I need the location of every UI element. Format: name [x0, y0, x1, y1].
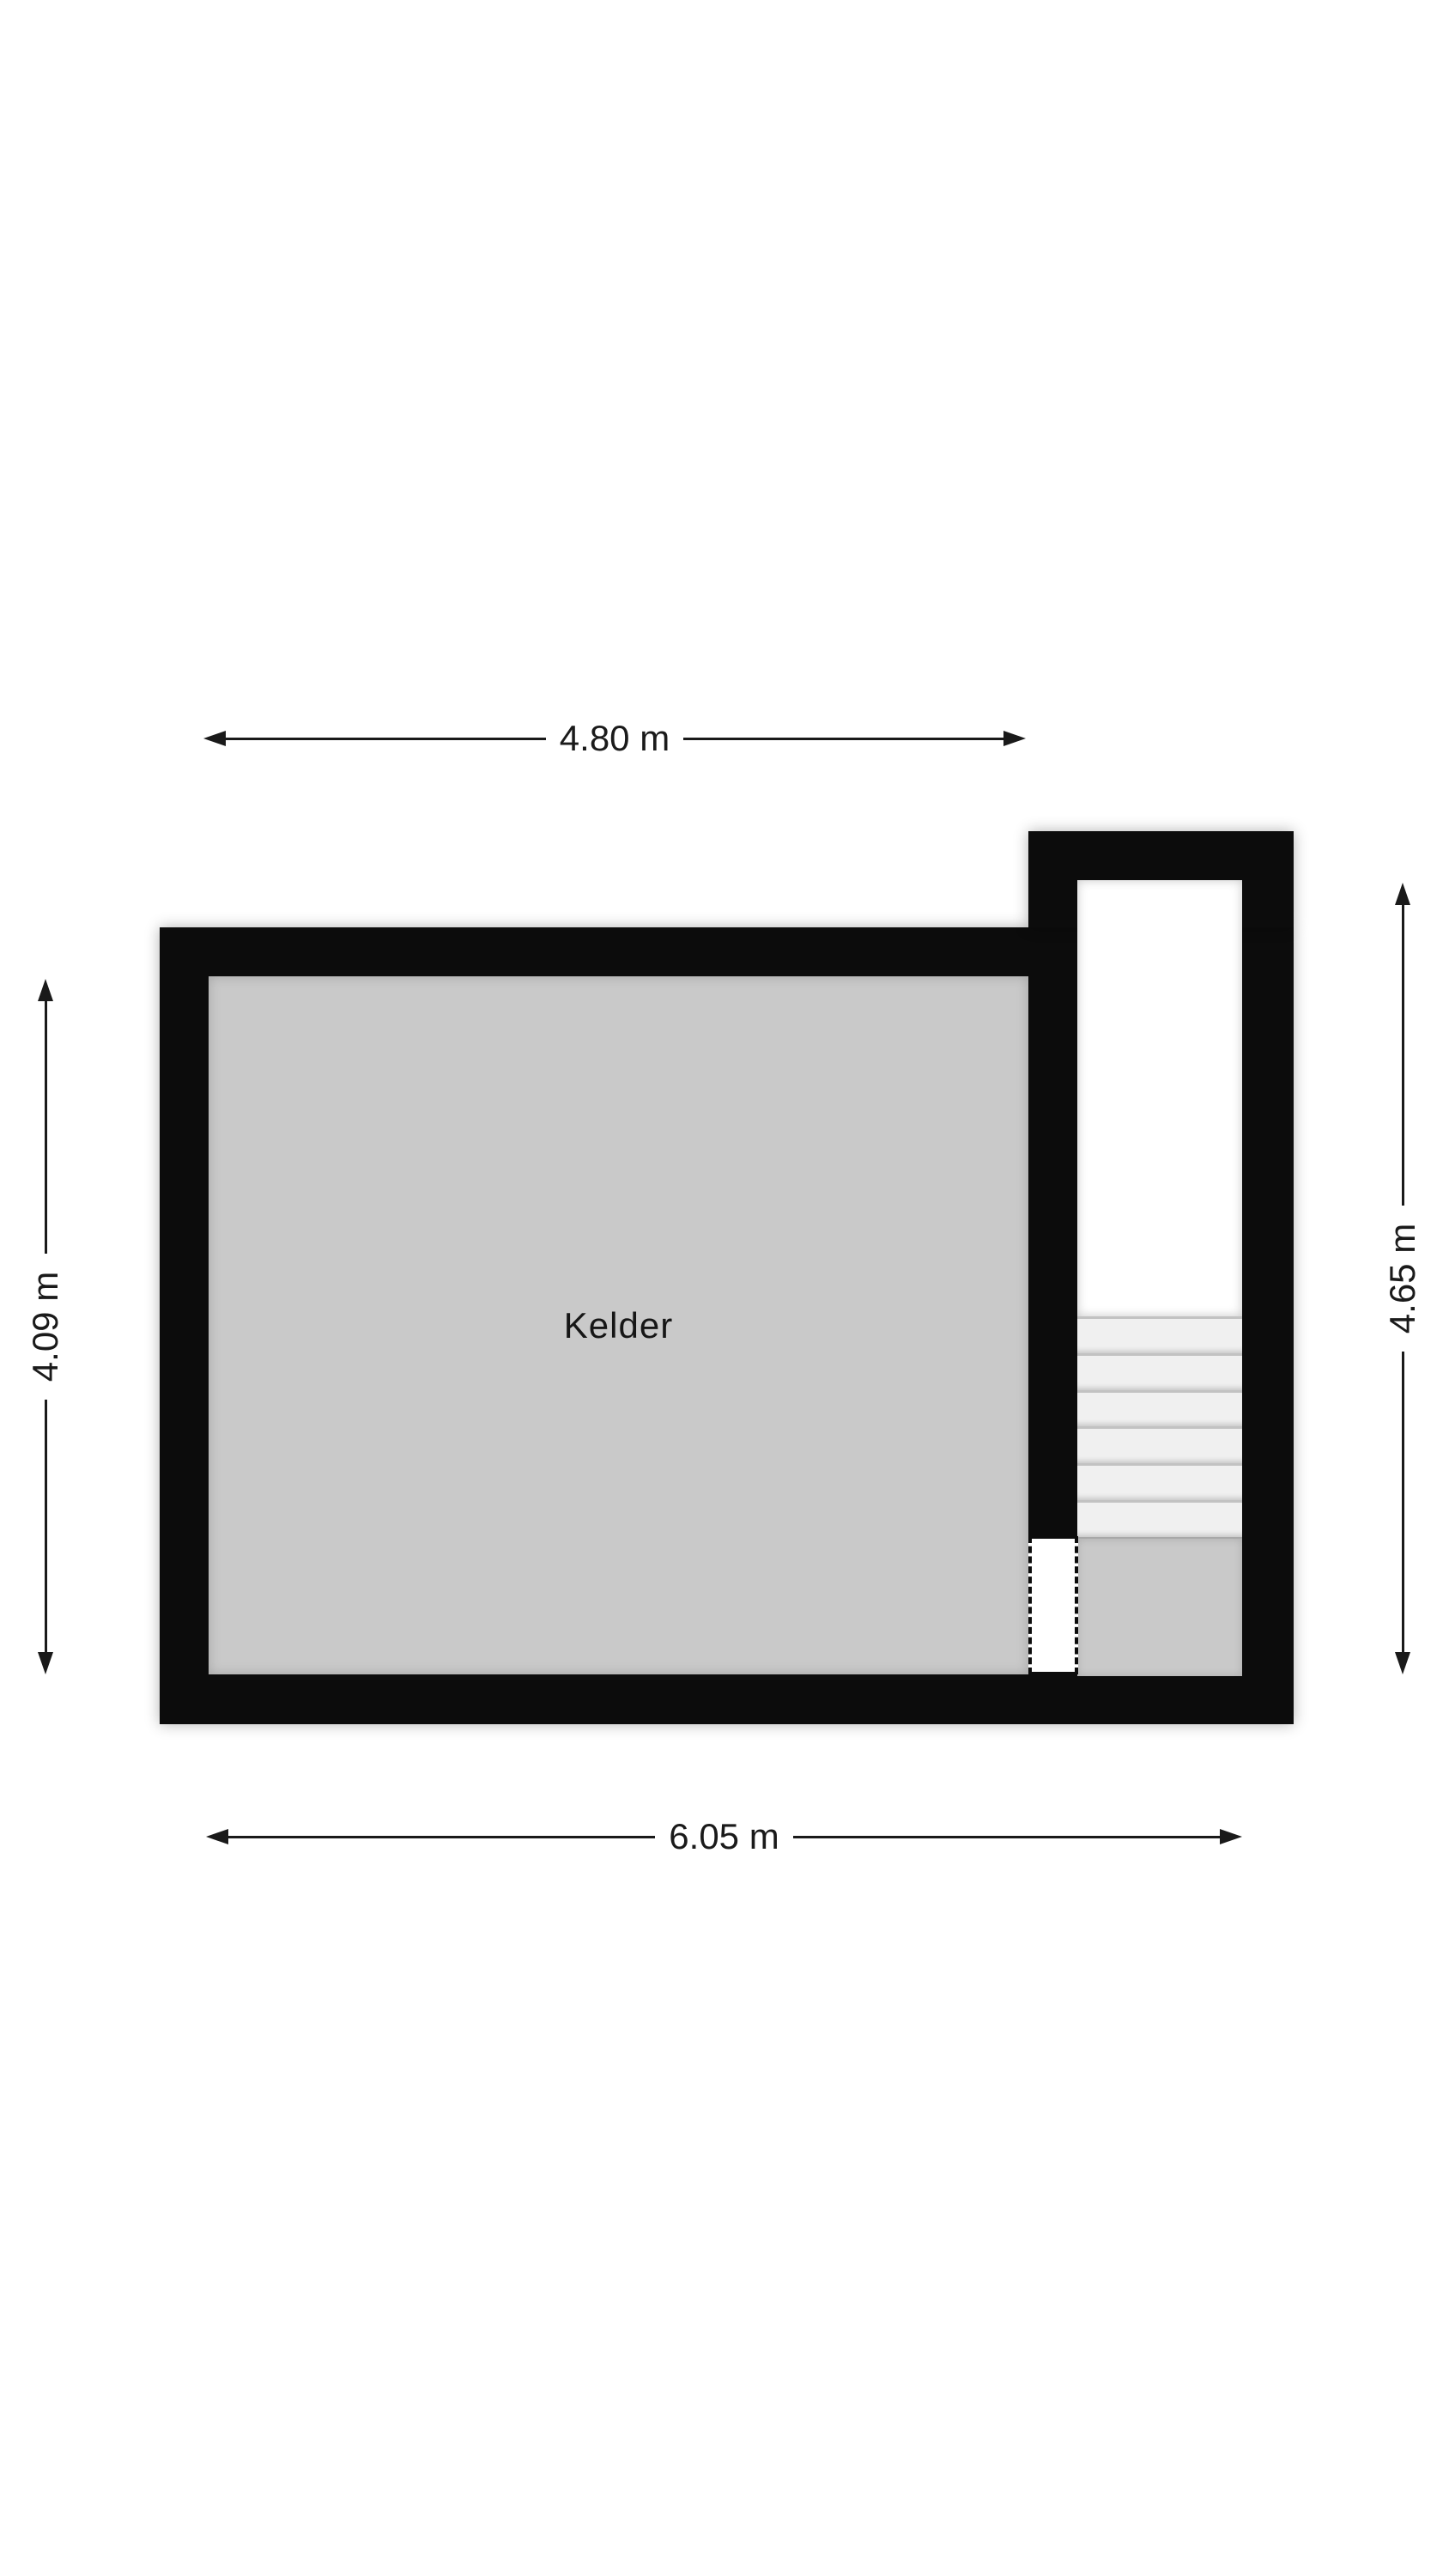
dimension-line [683, 738, 1003, 740]
dimension-line [1402, 905, 1404, 1206]
floorplan-canvas: Kelder 4.80 m 6.05 m 4.09 m 4.65 m [0, 0, 1449, 2576]
stair-tread [1077, 1353, 1242, 1390]
arrowhead-down-icon [1395, 1652, 1410, 1674]
dimension-right-label: 4.65 m [1382, 1224, 1423, 1334]
dimension-right-label-wrap: 4.65 m [1334, 1206, 1449, 1352]
staircase-treads [1077, 1316, 1242, 1537]
stair-tread [1077, 1426, 1242, 1463]
arrowhead-up-icon [38, 979, 53, 1001]
dimension-line [45, 1400, 47, 1652]
arrowhead-right-icon [1003, 731, 1026, 746]
staircase-well [1077, 880, 1242, 1316]
dimension-bottom-label: 6.05 m [655, 1815, 792, 1858]
dimension-line [45, 1001, 47, 1254]
staircase-landing [1077, 1537, 1242, 1676]
stair-tread [1077, 1500, 1242, 1537]
door-opening [1028, 1536, 1078, 1674]
dimension-line [228, 1836, 655, 1838]
dimension-line [226, 738, 546, 740]
room-kelder: Kelder [209, 976, 1028, 1674]
stair-tread [1077, 1463, 1242, 1500]
stair-tread [1077, 1390, 1242, 1427]
arrowhead-left-icon [203, 731, 226, 746]
room-label: Kelder [564, 1305, 673, 1346]
dimension-line [793, 1836, 1220, 1838]
stair-tread [1077, 1316, 1242, 1353]
dimension-left: 4.09 m [0, 979, 114, 1674]
dimension-right: 4.65 m [1334, 883, 1449, 1674]
dimension-top: 4.80 m [203, 717, 1026, 760]
dimension-left-label: 4.09 m [25, 1272, 66, 1382]
dimension-bottom: 6.05 m [206, 1815, 1242, 1858]
dimension-left-label-wrap: 4.09 m [0, 1254, 114, 1400]
arrowhead-down-icon [38, 1652, 53, 1674]
arrowhead-left-icon [206, 1829, 228, 1844]
dimension-top-label: 4.80 m [546, 717, 683, 760]
dimension-line [1402, 1352, 1404, 1652]
arrowhead-right-icon [1220, 1829, 1242, 1844]
arrowhead-up-icon [1395, 883, 1410, 905]
